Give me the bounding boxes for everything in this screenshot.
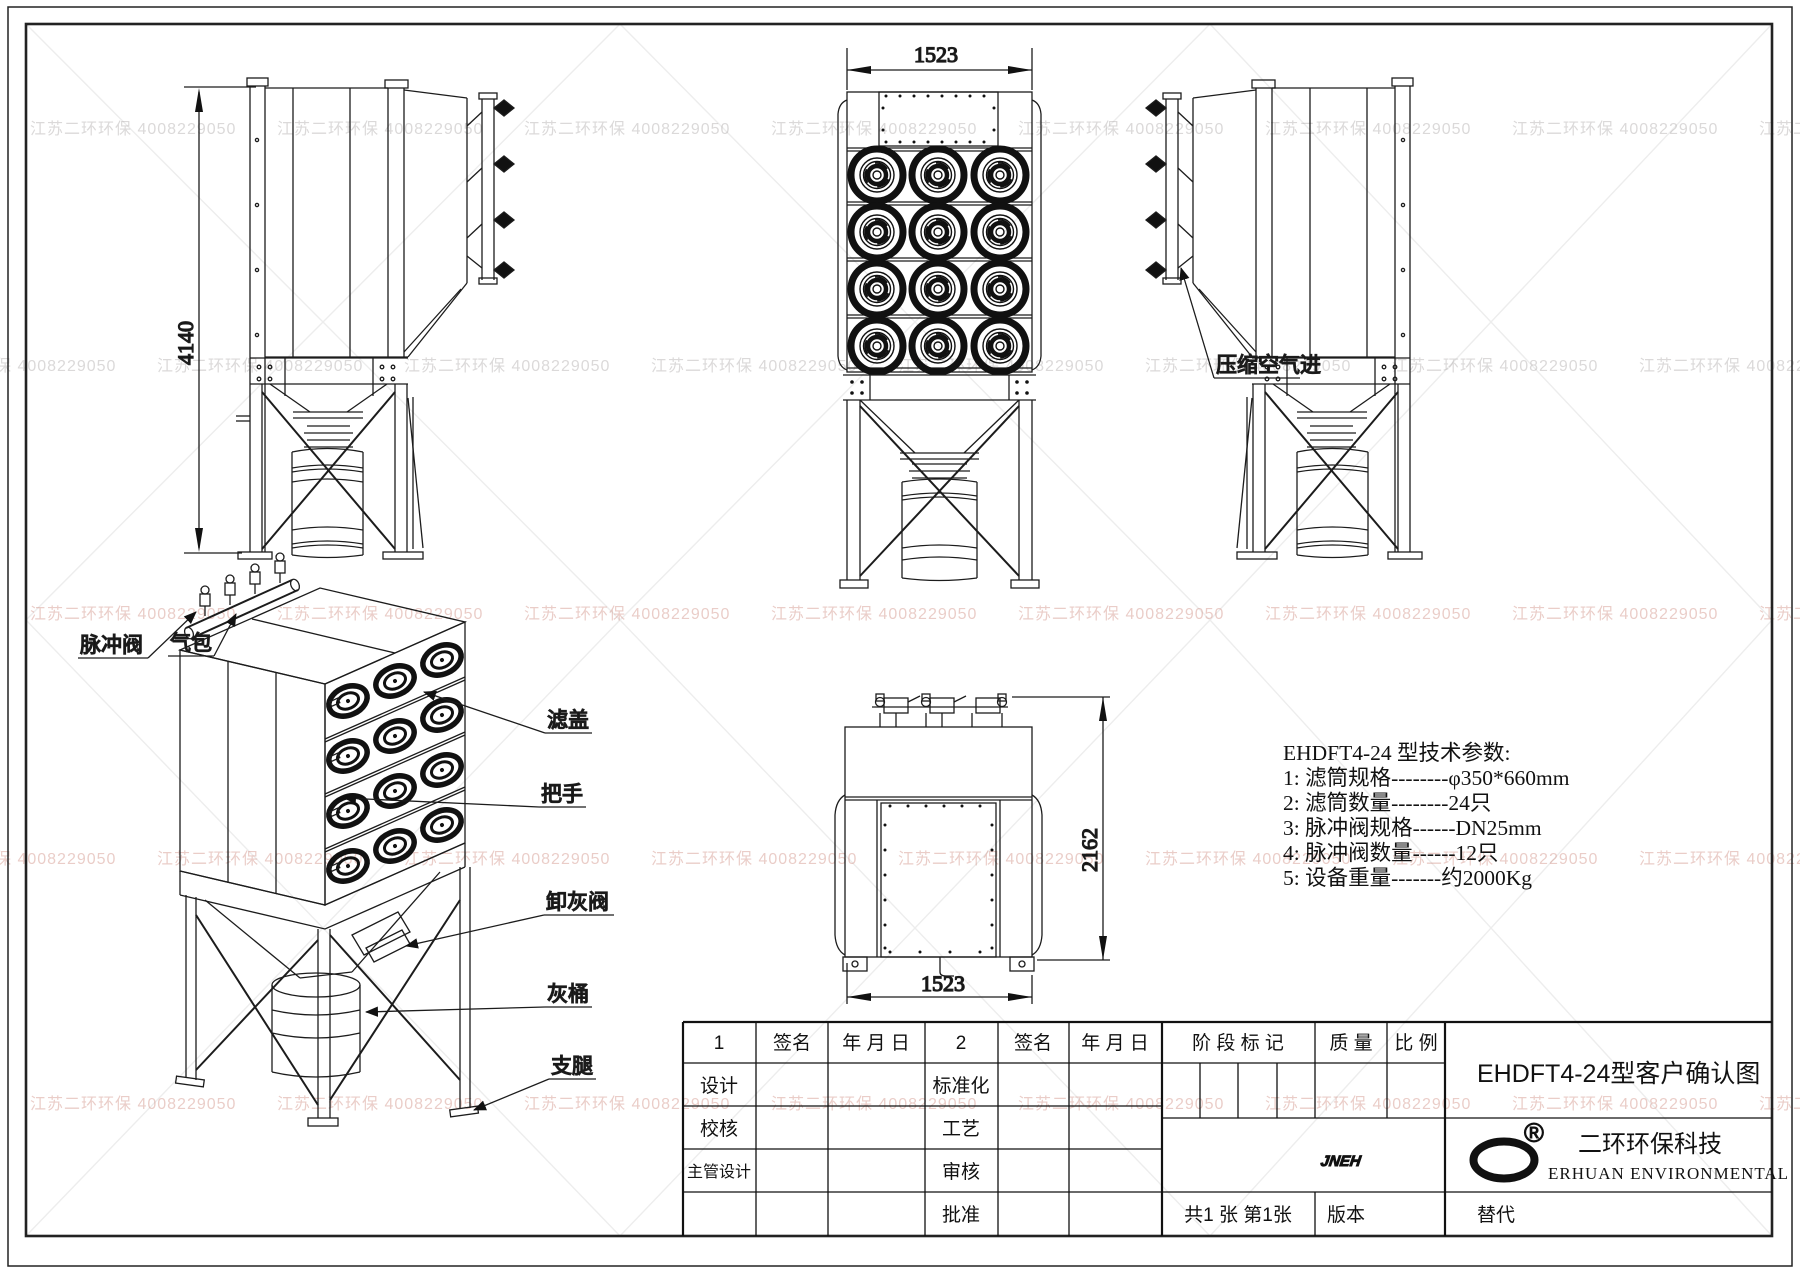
view-left-side: 4140 (173, 78, 514, 559)
title-block: 1 签名 年 月 日 2 签名 年 月 日 设计 标准化 校核 工艺 主管设计 … (683, 1022, 1789, 1236)
tb-date2: 年 月 日 (1081, 1032, 1149, 1054)
tech-spec-item: 2: 滤筒数量--------24只 (1283, 791, 1569, 816)
tb-sign2: 签名 (1014, 1032, 1052, 1054)
cad-drawing: 4140 (0, 0, 1800, 1273)
logo-text: JNEH (1320, 1153, 1363, 1170)
tech-spec-item: 1: 滤筒规格--------φ350*660mm (1283, 766, 1569, 791)
dim-rear-width: 1523 (921, 971, 965, 996)
tb-approve: 批准 (942, 1204, 980, 1226)
pulse-valves (200, 553, 285, 616)
tb-quality: 质 量 (1329, 1032, 1372, 1054)
view-isometric: 脉冲阀 气包 滤盖 把手 卸灰阀 灰桶 支腿 (78, 553, 614, 1126)
label-pulse-valve: 脉冲阀 (80, 633, 143, 657)
registered-mark: ® (1524, 1118, 1544, 1148)
tech-spec-item: 4: 脉冲阀数量------12只 (1283, 841, 1569, 866)
dim-front-width: 1523 (914, 42, 958, 67)
tb-design: 设计 (700, 1075, 738, 1097)
view-front: 1523 (838, 42, 1041, 588)
tb-replace: 替代 (1477, 1204, 1515, 1226)
label-ash-valve: 卸灰阀 (546, 890, 609, 914)
tb-col2: 2 (956, 1033, 967, 1054)
tb-col1: 1 (714, 1033, 725, 1054)
tech-spec-item: 3: 脉冲阀规格------DN25mm (1283, 816, 1569, 841)
tb-version: 版本 (1327, 1204, 1365, 1226)
tech-specs: EHDFT4-24 型技术参数: 1: 滤筒规格--------φ350*660… (1283, 741, 1569, 891)
company-name-en: ERHUAN ENVIRONMENTAL (1548, 1164, 1789, 1183)
tb-sheets: 共1 张 第1张 (1184, 1204, 1292, 1226)
company-name-cn: 二环环保科技 (1578, 1131, 1722, 1158)
tb-stage-mark: 阶 段 标 记 (1192, 1032, 1284, 1054)
view-right-side: 压缩空气进 (1146, 78, 1422, 559)
tech-spec-item: 5: 设备重量-------约2000Kg (1283, 866, 1569, 891)
label-handle: 把手 (541, 782, 583, 806)
label-legs: 支腿 (551, 1054, 593, 1078)
dim-rear-height: 2162 (1077, 828, 1102, 872)
view-rear: 2162 1523 (835, 694, 1110, 1004)
tb-check: 校核 (700, 1118, 738, 1140)
tech-specs-title: EHDFT4-24 型技术参数: (1283, 741, 1569, 766)
drawing-title: EHDFT4-24型客户确认图 (1477, 1060, 1760, 1088)
tb-review: 审核 (942, 1161, 980, 1183)
tb-chief-design: 主管设计 (687, 1163, 751, 1181)
tb-sign1: 签名 (773, 1032, 811, 1054)
company-logo: JNEH ® (1320, 1118, 1544, 1182)
drawing-sheet: 江苏二环环保 4008229050江苏二环环保 4008229050江苏二环环保… (0, 0, 1800, 1273)
label-air-tank: 气包 (170, 631, 212, 655)
label-filter-cover: 滤盖 (547, 708, 589, 732)
rear-pulse-valves (872, 694, 1008, 727)
dim-left-height: 4140 (173, 321, 198, 365)
label-air-inlet: 压缩空气进 (1216, 353, 1321, 377)
label-ash-bucket: 灰桶 (547, 982, 589, 1006)
tb-process: 工艺 (942, 1118, 980, 1140)
tb-standardize: 标准化 (932, 1075, 989, 1097)
tb-date1: 年 月 日 (842, 1032, 910, 1054)
tb-scale: 比 例 (1394, 1032, 1437, 1054)
